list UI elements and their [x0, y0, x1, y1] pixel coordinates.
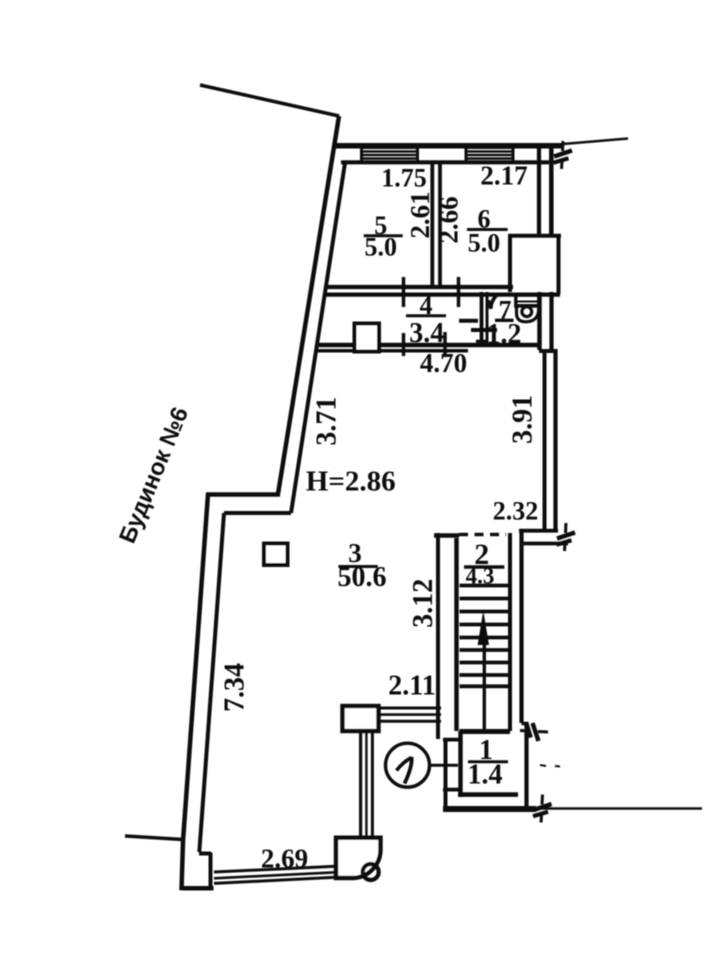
svg-text:7.34: 7.34 — [220, 663, 251, 712]
svg-text:3.12: 3.12 — [408, 579, 439, 628]
svg-text:1.4: 1.4 — [468, 760, 503, 791]
svg-text:2.69: 2.69 — [261, 844, 308, 874]
svg-text:2.11: 2.11 — [388, 670, 435, 701]
svg-text:H=2.86: H=2.86 — [306, 466, 396, 498]
svg-text:4.70: 4.70 — [420, 348, 467, 378]
svg-text:3.91: 3.91 — [507, 395, 538, 444]
svg-text:5.0: 5.0 — [468, 229, 501, 258]
svg-text:2.32: 2.32 — [493, 497, 539, 526]
svg-text:1.75: 1.75 — [381, 163, 427, 192]
svg-text:3.71: 3.71 — [312, 397, 343, 446]
svg-text:Будинок №6: Будинок №6 — [114, 403, 193, 546]
svg-text:2.17: 2.17 — [480, 161, 527, 191]
svg-text:2.66: 2.66 — [434, 196, 464, 243]
svg-text:3.4: 3.4 — [409, 318, 444, 349]
svg-text:2.61: 2.61 — [405, 191, 435, 238]
